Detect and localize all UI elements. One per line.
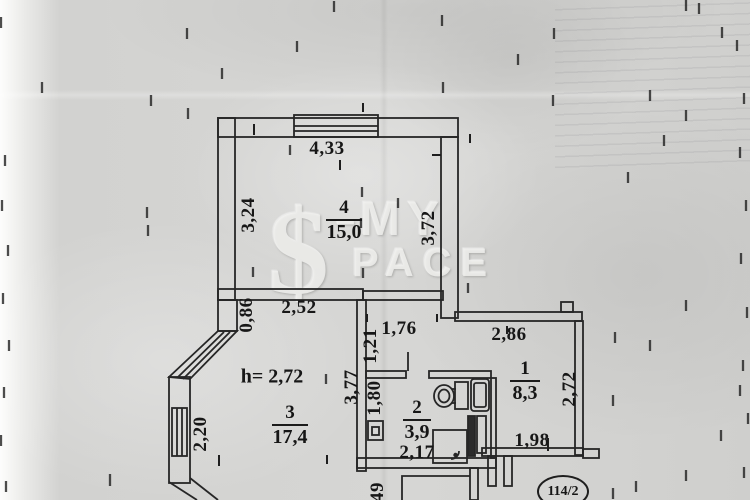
dim-room2-left: 1,80	[364, 380, 386, 415]
dim-corridor-left: 1,21	[360, 328, 382, 363]
wall-bath-top-left	[366, 371, 406, 378]
wall-hall-inner	[402, 476, 470, 500]
shower-drain-dot	[454, 454, 457, 457]
room2-number: 2	[412, 398, 422, 417]
window-room3-left	[172, 408, 187, 456]
wall-corridor-top	[363, 291, 443, 300]
room2-area: 3,9	[405, 422, 430, 442]
wall-bath-right	[491, 378, 496, 458]
toilet-bowl-icon	[434, 385, 454, 407]
wall-room1-top	[455, 312, 582, 321]
wall-hall-right	[470, 468, 478, 500]
dim-room4-top: 4,33	[309, 138, 344, 160]
dim-room3-left: 2,20	[190, 416, 212, 451]
room4-area: 15,0	[327, 222, 362, 242]
toilet-tank-icon	[455, 382, 468, 409]
sink-icon	[368, 421, 383, 440]
toilet-bowl-inner	[439, 390, 450, 403]
room2-label: 2 3,9	[403, 398, 431, 442]
wall-room1-notch	[561, 302, 573, 312]
wall-room3-left-upper	[218, 300, 237, 331]
survey-tick-marks	[1, 0, 748, 499]
entry-door-post	[488, 456, 496, 486]
room1-number: 1	[520, 359, 530, 378]
wall-room3-bottom-diagonal	[169, 482, 197, 500]
scanned-floor-plan-page: $ – MY PACE	[0, 0, 750, 500]
room3-number: 3	[285, 403, 295, 422]
dim-room3-left-upper: 0,86	[236, 297, 258, 332]
room3-area: 17,4	[273, 427, 308, 447]
room4-number: 4	[339, 198, 349, 217]
room1-area: 8,3	[513, 383, 538, 403]
duct-shaft-filled	[468, 416, 475, 456]
dim-room1-bottom: 1,98	[514, 430, 549, 452]
sheet-number: 114/2	[547, 484, 578, 500]
entry-door-post	[504, 456, 512, 486]
floor-plan-drawing	[0, 0, 750, 500]
washbasin-inner	[474, 383, 486, 407]
dim-hall-width-partial: 49	[367, 482, 389, 500]
wall-room3-bottom-diagonal	[190, 478, 218, 500]
bay-window-diagonal	[169, 331, 237, 379]
dim-room2-bottom: 2,17	[399, 442, 434, 464]
dim-room1-right: 2,72	[559, 371, 581, 406]
wall-room1-bottom-ext	[583, 449, 599, 458]
room1-label: 1 8,3	[510, 359, 540, 403]
dim-room4-left: 3,24	[238, 197, 260, 232]
dim-room3-top: 2,52	[281, 297, 316, 319]
dim-room1-top: 2,86	[491, 324, 526, 346]
wall-bath-top-right	[429, 371, 491, 378]
sink-inner	[372, 427, 379, 435]
dim-corridor-width: 1,76	[381, 318, 416, 340]
room4-label: 4 15,0	[326, 198, 362, 242]
sheet-number-stamp: 114/2	[537, 475, 589, 500]
dim-room4-right: 3,72	[418, 210, 440, 245]
room3-label: 3 17,4	[272, 403, 308, 447]
wall-room4-left	[218, 118, 235, 300]
dim-corridor-length: 3,77	[341, 369, 363, 404]
ceiling-height-note: h= 2,72	[241, 366, 304, 389]
